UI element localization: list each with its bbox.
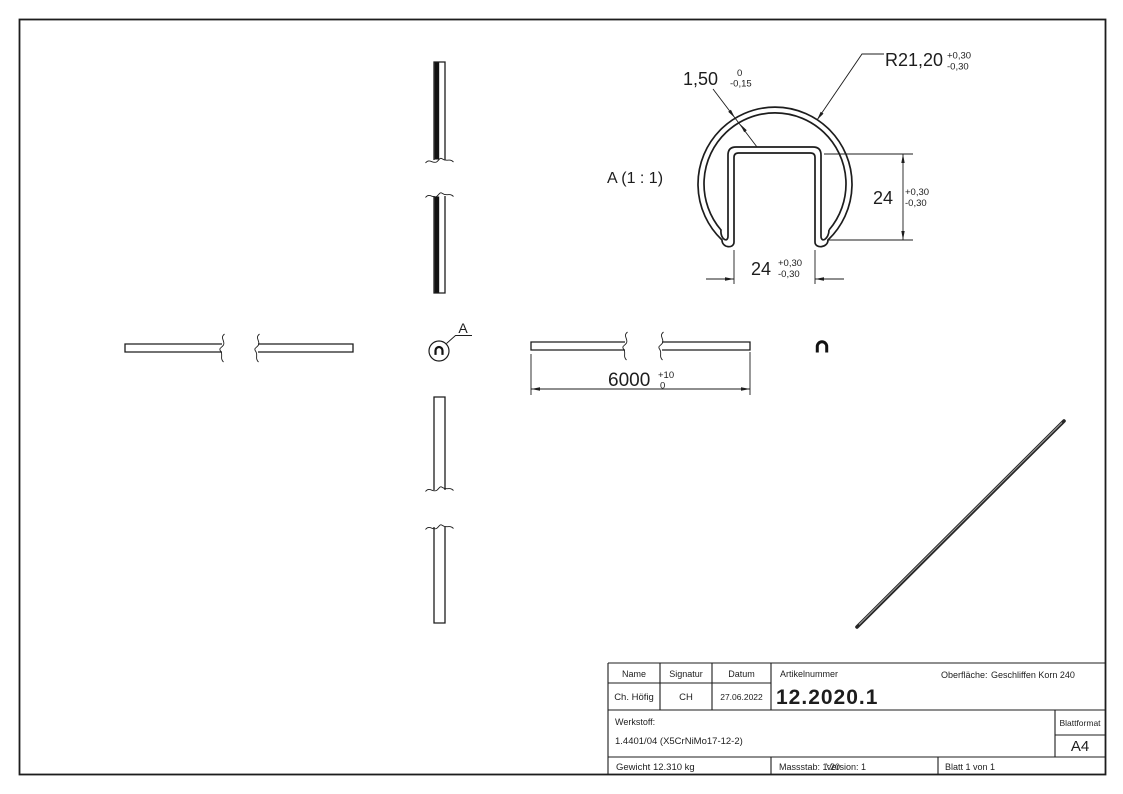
artikelnummer-value: 12.2020.1 [776,686,878,709]
bottom-view-bar-segment-2 [434,527,445,623]
detail-view: 1,50 0 -0,15 R21,20 +0,30 -0,30 24 +0,30… [607,50,971,284]
break-line [426,158,454,163]
side-view-bar-segment-2 [258,344,353,352]
signatur-header: Signatur [669,669,703,679]
width-dim-tol-top: +0,30 [778,258,802,269]
arrowhead-up [901,154,904,163]
break-line [426,525,454,530]
title-block: Name Signatur Datum Ch. Höfig CH 27.06.2… [608,663,1105,774]
profile-outer-surface [698,107,852,247]
werkstoff-value: 1.4401/04 (X5CrNiMo17-12-2) [615,736,743,747]
signatur-value: CH [679,692,693,703]
artikelnummer-label: Artikelnummer [780,669,838,679]
section-leader-line [447,336,473,344]
front-view-bar-segment-2 [662,342,750,350]
side-view-bar [125,334,353,362]
break-line [426,193,454,198]
break-line [255,334,260,362]
radius-dim-tol-top: +0,30 [947,51,971,62]
wall-dim-tol-top: 0 [737,68,742,79]
drawing-canvas: A 6000 +10 0 1,50 0 -0,15 R21,20 +0,30 -… [0,0,1123,794]
break-line [659,332,664,360]
blattformat-label: Blattformat [1059,718,1101,728]
break-line [426,487,454,492]
arrowhead-left2 [815,277,824,280]
sheet-border [20,20,1106,775]
height-dim-tol-bottom: -0,30 [905,198,927,209]
name-header: Name [622,669,646,679]
break-line [623,332,628,360]
arrowhead-right2 [725,277,734,280]
height-dim-tol-top: +0,30 [905,187,929,198]
width-dim-tol-bottom: -0,30 [778,269,800,280]
bottom-view-bar-segment-1 [434,397,445,490]
length-dim-tol-bottom: 0 [660,381,665,392]
top-view-slot-band-2 [435,197,440,293]
height-dimension-lines [824,154,913,240]
radius-dim-value: R21,20 [885,50,943,70]
datum-value: 27.06.2022 [720,692,763,702]
radius-dim-tol-bottom: -0,30 [947,62,969,73]
front-view-bar-segment-1 [531,342,625,350]
gewicht-value: Gewicht 12.310 kg [616,762,695,773]
wall-dim-tol-bottom: -0,15 [730,79,752,90]
arrowhead-wall-inner [740,124,747,132]
bottom-view-bar [426,397,454,623]
section-marker: A [429,320,472,361]
height-dim-value: 24 [873,188,893,208]
isometric-rod-highlight [859,423,1062,625]
arrowhead-left [531,387,540,390]
oberflaeche-label: Oberfläche: [941,670,988,680]
end-view-profile-icon [816,340,828,352]
top-view-slot-band [435,63,440,160]
profile-end-icon [434,346,443,355]
break-line [220,334,225,362]
top-view-bar [426,62,454,293]
radius-leader-line [817,54,884,120]
oberflaeche-value: Geschliffen Korn 240 [991,670,1075,680]
blattformat-value: A4 [1071,738,1089,755]
isometric-view [857,421,1064,627]
drawing-sheet: A 6000 +10 0 1,50 0 -0,15 R21,20 +0,30 -… [0,0,1123,794]
blatt-value: Blatt 1 von 1 [945,762,995,772]
version-value: Version: 1 [826,762,866,772]
arrowhead-right [741,387,750,390]
side-view-bar-segment-1 [125,344,222,352]
name-value: Ch. Höfig [614,692,654,703]
werkstoff-label: Werkstoff: [615,717,655,727]
arrowhead-radius [817,112,824,120]
profile-inner-surface [704,113,846,240]
front-view: 6000 +10 0 [531,332,750,395]
section-label: A [458,320,468,336]
detail-view-label: A (1 : 1) [607,170,663,187]
datum-header: Datum [728,669,755,679]
length-dim-tol-top: +10 [658,370,674,381]
wall-dim-value: 1,50 [683,69,718,89]
section-circle-icon [429,341,449,361]
arrowhead-down [901,231,904,240]
width-dim-value: 24 [751,259,771,279]
length-dim-value: 6000 [608,370,650,391]
